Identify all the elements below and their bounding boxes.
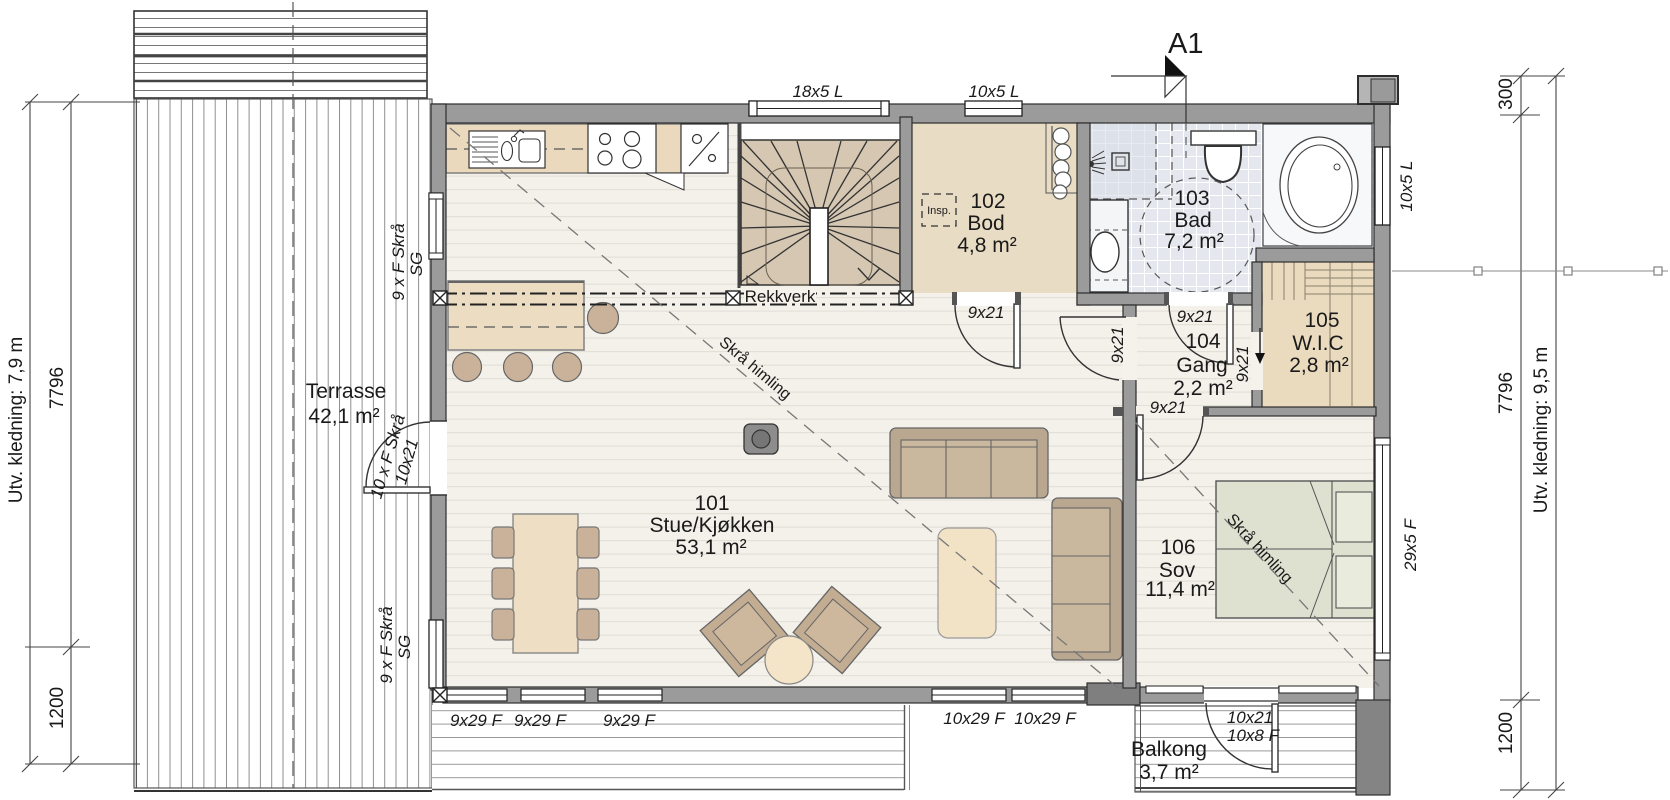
svg-text:11,4 m²: 11,4 m² <box>1145 578 1215 601</box>
svg-text:9x29 F: 9x29 F <box>450 711 504 730</box>
svg-text:9x29 F: 9x29 F <box>514 711 568 730</box>
svg-text:Utv. kledning: 9,5 m: Utv. kledning: 9,5 m <box>1531 347 1552 514</box>
svg-text:9x29 F: 9x29 F <box>603 711 657 730</box>
svg-text:Gang: Gang <box>1176 354 1227 377</box>
svg-text:3,7 m²: 3,7 m² <box>1139 761 1199 784</box>
svg-text:105: 105 <box>1304 309 1339 332</box>
svg-text:Stue/Kjøkken: Stue/Kjøkken <box>650 514 775 537</box>
svg-text:9 x F Skrå: 9 x F Skrå <box>389 223 408 300</box>
svg-text:10x29 F: 10x29 F <box>1014 709 1077 728</box>
svg-text:9x21: 9x21 <box>968 303 1005 322</box>
svg-text:Balkong: Balkong <box>1131 738 1207 761</box>
svg-text:300: 300 <box>1496 78 1517 110</box>
svg-text:Insp.: Insp. <box>927 205 951 217</box>
svg-text:104: 104 <box>1185 330 1220 353</box>
svg-text:53,1 m²: 53,1 m² <box>675 536 746 559</box>
svg-text:9 x F Skrå: 9 x F Skrå <box>377 606 396 683</box>
svg-text:10x5 L: 10x5 L <box>1397 160 1416 211</box>
svg-text:7796: 7796 <box>1496 372 1517 414</box>
svg-text:Terrasse: Terrasse <box>306 380 387 403</box>
svg-text:10x5 L: 10x5 L <box>968 82 1019 101</box>
svg-text:29x5 F: 29x5 F <box>1401 517 1420 572</box>
svg-text:Bad: Bad <box>1174 209 1211 232</box>
svg-text:42,1 m²: 42,1 m² <box>308 405 379 428</box>
svg-text:2,8 m²: 2,8 m² <box>1289 354 1349 377</box>
svg-text:102: 102 <box>970 190 1005 213</box>
svg-text:A1: A1 <box>1168 28 1203 60</box>
svg-text:Bod: Bod <box>967 212 1004 235</box>
svg-text:SG: SG <box>395 635 414 660</box>
svg-text:7796: 7796 <box>47 367 68 409</box>
svg-text:101: 101 <box>694 492 729 515</box>
svg-text:9x21: 9x21 <box>1233 346 1252 383</box>
svg-text:10x29 F: 10x29 F <box>943 709 1006 728</box>
svg-text:1200: 1200 <box>1496 712 1517 754</box>
svg-text:103: 103 <box>1174 187 1209 210</box>
svg-text:9x21: 9x21 <box>1108 327 1127 364</box>
svg-text:10x21: 10x21 <box>1227 708 1273 727</box>
svg-text:9x21: 9x21 <box>1150 398 1187 417</box>
svg-text:7,2 m²: 7,2 m² <box>1164 230 1224 253</box>
svg-text:4,8 m²: 4,8 m² <box>957 234 1017 257</box>
svg-text:1200: 1200 <box>47 687 68 729</box>
svg-text:106: 106 <box>1160 536 1195 559</box>
svg-text:10x8 F: 10x8 F <box>1227 726 1281 745</box>
svg-text:Utv. kledning: 7,9 m: Utv. kledning: 7,9 m <box>6 337 27 504</box>
svg-text:SG: SG <box>407 252 426 277</box>
svg-text:W.I.C: W.I.C <box>1292 332 1343 355</box>
svg-text:Rekkverk: Rekkverk <box>745 287 816 306</box>
svg-text:2,2 m²: 2,2 m² <box>1173 377 1233 400</box>
svg-text:18x5 L: 18x5 L <box>792 82 843 101</box>
svg-text:9x21: 9x21 <box>1177 307 1214 326</box>
